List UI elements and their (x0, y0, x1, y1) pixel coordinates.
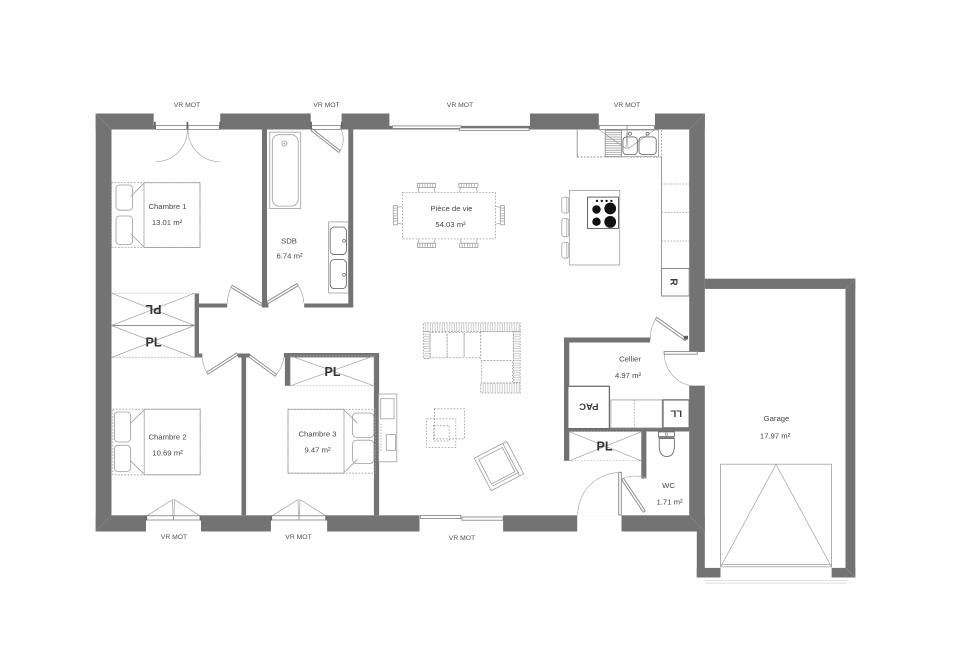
svg-text:PL: PL (597, 440, 613, 454)
svg-text:4.97 m²: 4.97 m² (615, 371, 642, 380)
svg-text:VR MOT: VR MOT (161, 534, 187, 541)
svg-text:LL: LL (670, 407, 682, 418)
svg-text:17.97 m²: 17.97 m² (760, 432, 791, 441)
svg-text:6.74 m²: 6.74 m² (276, 252, 303, 261)
svg-text:Chambre 1: Chambre 1 (148, 202, 186, 211)
svg-text:Chambre 3: Chambre 3 (298, 430, 336, 439)
svg-text:VR MOT: VR MOT (313, 102, 339, 109)
svg-text:PAC: PAC (579, 401, 598, 412)
svg-text:VR MOT: VR MOT (614, 102, 640, 109)
svg-text:SDB: SDB (281, 237, 297, 246)
svg-text:PL: PL (146, 336, 162, 350)
svg-text:R: R (667, 278, 678, 286)
svg-text:PL: PL (325, 365, 341, 379)
svg-text:Cellier: Cellier (619, 355, 641, 364)
svg-text:VR MOT: VR MOT (447, 102, 473, 109)
svg-text:VR MOT: VR MOT (449, 535, 475, 542)
svg-text:Pièce de vie: Pièce de vie (431, 204, 473, 213)
svg-text:Chambre 2: Chambre 2 (148, 433, 186, 442)
svg-text:13.01 m²: 13.01 m² (152, 218, 183, 227)
svg-text:Garage: Garage (764, 414, 790, 423)
svg-text:WC: WC (662, 481, 675, 490)
svg-text:VR MOT: VR MOT (285, 534, 311, 541)
svg-text:54.03 m²: 54.03 m² (435, 220, 466, 229)
svg-text:9.47 m²: 9.47 m² (304, 446, 331, 455)
svg-text:1.71 m²: 1.71 m² (656, 498, 683, 507)
svg-text:VR MOT: VR MOT (174, 102, 200, 109)
svg-text:PL: PL (145, 302, 161, 316)
svg-text:10.69 m²: 10.69 m² (152, 449, 183, 458)
